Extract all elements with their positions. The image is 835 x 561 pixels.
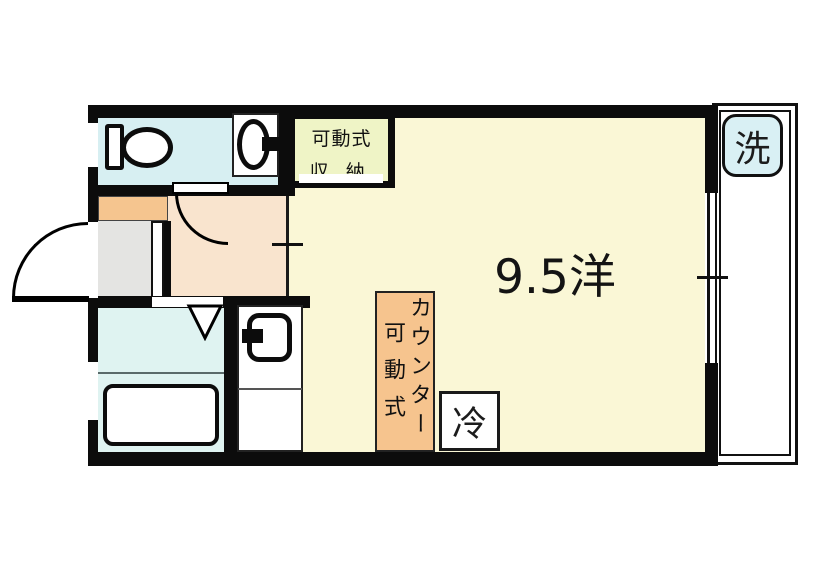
refrigerator-label: 冷 [452,396,487,447]
main-room-label: 9.5洋 [455,240,655,304]
kitchen-faucet-icon [242,329,263,343]
toilet-bowl-icon [121,127,173,168]
wall-right-lower [705,363,718,466]
bathroom-window-opening [88,362,98,420]
entrance-step-door [151,221,164,298]
counter-label-type: 可動式 [376,321,408,432]
kitchen-divider-line [238,388,302,390]
bathtub-icon [103,384,219,446]
wall-right-of-toilet-room [278,105,294,196]
bathroom-divider-line [98,372,224,374]
entrance-floor [98,221,152,298]
storage-label-line1: 可動式 [311,124,371,151]
wall-bottom [88,452,718,466]
storage-track [299,174,383,183]
bathroom-folding-door-icon [186,303,224,341]
floor-plan: 洗 可動式 収納 カウンター 可動式 冷 [0,0,835,561]
partition-cross-mark [272,243,303,246]
hallway-partition-line [286,196,289,296]
refrigerator-box: 冷 [439,391,500,451]
toilet-door-leaf [172,182,229,194]
washing-machine-box: 洗 [722,114,783,177]
wall-top [88,105,718,118]
entrance-wall-stub [164,221,171,298]
shoe-cabinet [98,196,168,221]
entrance-door-opening [88,222,98,298]
wall-bath-kitchen [224,296,237,466]
entrance-door-leaf [12,296,89,302]
washing-machine-label: 洗 [734,120,770,172]
wall-right-upper [705,105,718,193]
entrance-door-swing-arc [12,222,88,298]
washbasin-faucet-icon [262,137,279,151]
window-cross-mark [697,276,728,279]
toilet-window-opening [88,123,98,167]
